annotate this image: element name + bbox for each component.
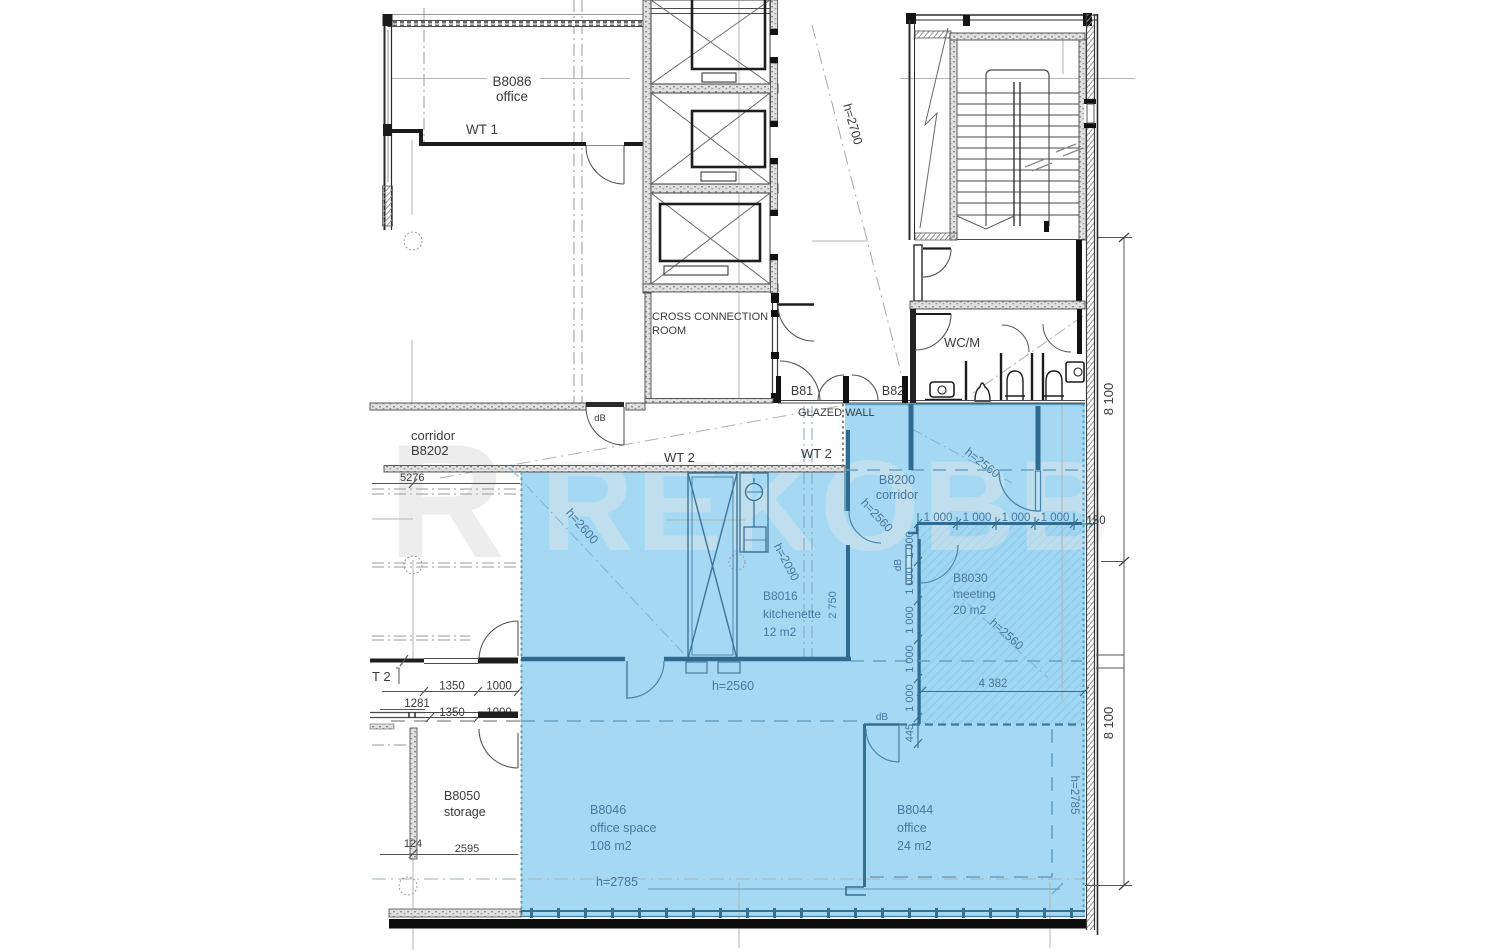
- svg-text:108 m2: 108 m2: [590, 839, 632, 853]
- svg-text:4 382: 4 382: [979, 678, 1008, 690]
- svg-text:CROSS CONNECTION: CROSS CONNECTION: [652, 311, 768, 323]
- svg-text:B81: B81: [791, 384, 813, 398]
- svg-text:1281: 1281: [404, 698, 430, 710]
- svg-text:1 000: 1 000: [904, 645, 916, 673]
- svg-text:office space: office space: [590, 821, 657, 835]
- svg-text:5276: 5276: [400, 472, 424, 484]
- svg-text:B8030: B8030: [953, 571, 988, 585]
- svg-text:office: office: [897, 821, 927, 835]
- svg-text:12 m2: 12 m2: [763, 625, 797, 639]
- svg-text:ROOM: ROOM: [652, 325, 686, 337]
- svg-text:B8016: B8016: [763, 589, 798, 603]
- svg-text:1 000: 1 000: [1002, 512, 1031, 524]
- svg-text:124: 124: [404, 838, 422, 850]
- svg-text:1 000: 1 000: [904, 531, 916, 559]
- svg-text:storage: storage: [444, 805, 486, 819]
- svg-text:8 100: 8 100: [1101, 383, 1116, 416]
- svg-text:1 000: 1 000: [924, 512, 953, 524]
- svg-text:8 100: 8 100: [1101, 707, 1116, 740]
- svg-text:2 750: 2 750: [827, 591, 839, 619]
- svg-text:h=2785: h=2785: [596, 875, 638, 889]
- svg-text:B8050: B8050: [444, 789, 480, 803]
- svg-text:h=2560: h=2560: [712, 679, 754, 693]
- svg-text:GLAZED WALL: GLAZED WALL: [798, 407, 875, 419]
- svg-text:2595: 2595: [455, 843, 479, 855]
- svg-text:corridor: corridor: [411, 428, 456, 443]
- svg-text:1000: 1000: [486, 681, 512, 693]
- svg-text:B82: B82: [882, 384, 904, 398]
- svg-text:B8044: B8044: [897, 803, 933, 817]
- svg-text:WT 1: WT 1: [466, 122, 498, 137]
- svg-text:1 000: 1 000: [904, 606, 916, 634]
- svg-text:1 000: 1 000: [1041, 512, 1070, 524]
- svg-text:1 000: 1 000: [904, 684, 916, 712]
- svg-text:office: office: [496, 89, 528, 104]
- svg-text:WT 2: WT 2: [801, 446, 832, 461]
- svg-text:dB: dB: [876, 712, 889, 723]
- svg-text:1350: 1350: [439, 681, 465, 693]
- svg-text:B8200: B8200: [879, 473, 915, 487]
- svg-text:WT 2: WT 2: [664, 450, 695, 465]
- svg-text:dB: dB: [893, 559, 904, 572]
- svg-text:24 m2: 24 m2: [897, 839, 932, 853]
- svg-text:B8202: B8202: [411, 443, 449, 458]
- svg-text:B8046: B8046: [590, 803, 626, 817]
- svg-text:dB: dB: [594, 413, 606, 424]
- svg-text:1 000: 1 000: [963, 512, 992, 524]
- svg-text:T 2: T 2: [372, 669, 391, 684]
- svg-text:h=2785: h=2785: [1068, 776, 1080, 815]
- svg-text:B8086: B8086: [492, 74, 531, 89]
- svg-text:kitchenette: kitchenette: [763, 607, 821, 621]
- svg-text:corridor: corridor: [876, 488, 918, 502]
- svg-text:1 000: 1 000: [904, 567, 916, 595]
- svg-text:150: 150: [1086, 515, 1105, 527]
- svg-text:meeting: meeting: [953, 587, 996, 601]
- svg-text:WC/M: WC/M: [944, 335, 980, 350]
- svg-text:445: 445: [904, 724, 916, 742]
